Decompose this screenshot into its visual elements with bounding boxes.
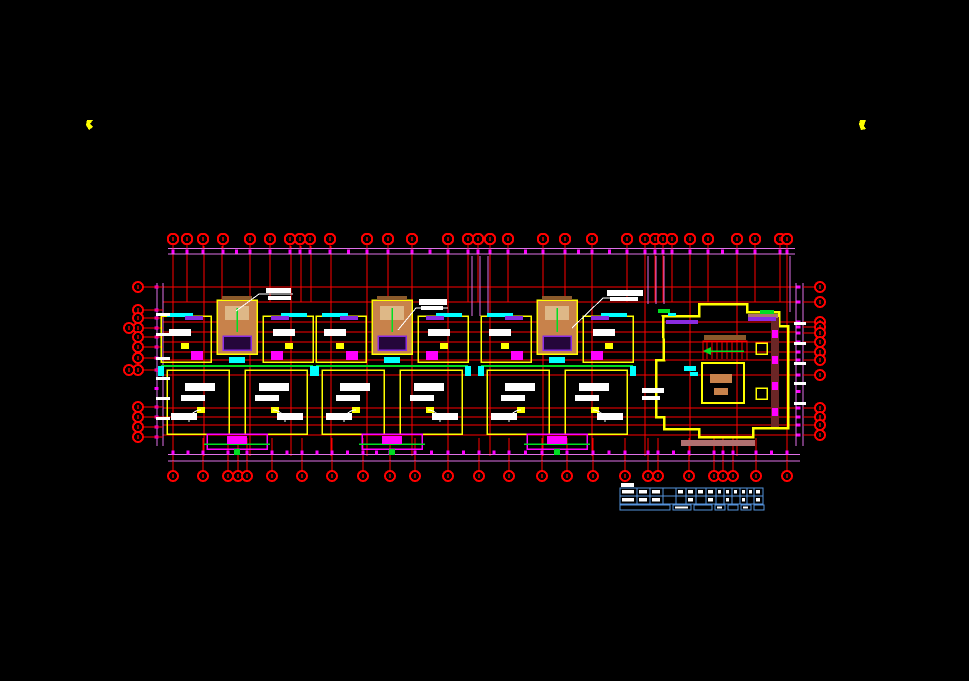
dimension-tick [227, 451, 230, 455]
wall [481, 316, 531, 362]
table-cell-text [726, 498, 729, 502]
dimension-tick [797, 301, 801, 304]
grid-number-glyph [137, 368, 139, 372]
grid-bubble [385, 471, 395, 481]
text-block [579, 383, 609, 391]
fixture [772, 382, 778, 390]
grid-bubble [538, 234, 548, 244]
dimension-tick [462, 451, 465, 455]
grid-bubble [653, 471, 663, 481]
dimension-tick [797, 407, 801, 410]
grid-bubble [198, 471, 208, 481]
dimension-tick [541, 451, 544, 455]
table-cell-text [698, 490, 703, 494]
grid-bubble [133, 412, 143, 422]
dimension-tick [592, 451, 595, 455]
fixture [191, 351, 203, 360]
dimension-tick [478, 451, 481, 455]
grid-bubble [782, 471, 792, 481]
dimension-tick [647, 451, 650, 455]
grid-number-glyph [137, 425, 139, 429]
window-sill [668, 313, 676, 316]
table-cell-text [678, 490, 683, 494]
dimension-tick [299, 250, 302, 254]
grid-bubble [667, 234, 677, 244]
grid-bubble [133, 332, 143, 342]
text-block [259, 383, 289, 391]
grid-number-glyph [227, 474, 229, 478]
grid-number-glyph [137, 356, 139, 360]
text-block [597, 413, 623, 420]
grid-number-glyph [137, 285, 139, 289]
grid-number-glyph [564, 237, 566, 241]
stair-arrow [234, 449, 240, 455]
annotation-text-block [268, 296, 291, 300]
grid-number-glyph [541, 474, 543, 478]
dimension-tick [779, 250, 782, 254]
grid-bubble [245, 234, 255, 244]
grid-number-glyph [819, 331, 821, 335]
dimension-tick [797, 434, 801, 437]
lintel [505, 316, 523, 320]
cursor-marker [859, 120, 866, 130]
dimension-tick [186, 250, 189, 254]
window-sill [549, 357, 565, 363]
table-band-text [675, 507, 688, 509]
dimension-tick [797, 416, 801, 419]
cursor-marker [86, 120, 93, 130]
text-block [491, 413, 517, 420]
grid-bubble [474, 471, 484, 481]
text-block [185, 383, 215, 391]
lintel [271, 316, 289, 320]
beam [542, 296, 572, 300]
level-tick [794, 362, 806, 365]
dimension-tick [347, 250, 350, 254]
dimension-tick [797, 390, 801, 393]
grid-number-glyph [819, 300, 821, 304]
dimension-tick [507, 250, 510, 254]
dimension-tick [187, 451, 190, 455]
lintel [426, 316, 444, 320]
dimension-tick [797, 351, 801, 354]
text-block [169, 329, 191, 336]
dimension-tick [429, 250, 432, 254]
dimension-tick [770, 451, 773, 455]
grid-number-glyph [592, 474, 594, 478]
grid-number-glyph [707, 237, 709, 241]
wall [263, 316, 313, 362]
grid-number-glyph [137, 316, 139, 320]
grid-number-glyph [271, 474, 273, 478]
grid-number-glyph [172, 237, 174, 241]
wall [501, 343, 509, 349]
dimension-tick [235, 250, 238, 254]
dimension-tick [624, 451, 627, 455]
grid-number-glyph [172, 474, 174, 478]
grid-number-glyph [202, 237, 204, 241]
table-cell-text [652, 490, 660, 494]
dimension-tick [688, 451, 691, 455]
grid-number-glyph [566, 474, 568, 478]
grid-bubble [133, 353, 143, 363]
text-block [428, 329, 450, 336]
dimension-tick [411, 250, 414, 254]
annotation-text-block [607, 290, 643, 296]
level-tick [156, 313, 170, 316]
grid-number-glyph [507, 237, 509, 241]
fixture [772, 330, 778, 338]
grid-bubble [265, 234, 275, 244]
grid-number-glyph [447, 474, 449, 478]
table-cell-text [742, 490, 745, 494]
dimension-tick [430, 451, 433, 455]
fixture [547, 436, 567, 444]
grid-bubble [640, 234, 650, 244]
dimension-tick [493, 451, 496, 455]
grid-bubble [815, 297, 825, 307]
grid-bubble [503, 234, 513, 244]
fixture [591, 351, 603, 360]
dimension-tick [566, 451, 569, 455]
grid-bubble [242, 471, 252, 481]
grid-number-glyph [644, 237, 646, 241]
grid-number-glyph [819, 423, 821, 427]
grid-bubble [124, 323, 134, 333]
window-sill [158, 366, 164, 376]
grid-number-glyph [626, 237, 628, 241]
grid-number-glyph [754, 237, 756, 241]
dimension-tick [577, 250, 580, 254]
grid-number-glyph [299, 237, 301, 241]
grid-number-glyph [689, 237, 691, 241]
detail [378, 336, 406, 350]
window-sill [465, 366, 471, 376]
grid-bubble [133, 313, 143, 323]
wall [316, 316, 366, 362]
dimension-tick [362, 451, 365, 455]
grid-number-glyph [137, 435, 139, 439]
grid-bubble [168, 234, 178, 244]
dimension-tick [672, 451, 675, 455]
table-cell-text [708, 490, 713, 494]
beam [222, 296, 252, 300]
level-tick [156, 333, 170, 336]
grid-bubble [473, 234, 483, 244]
grid-number-glyph [137, 405, 139, 409]
wall [167, 370, 229, 434]
grid-number-glyph [671, 237, 673, 241]
table-cell-text [622, 498, 634, 502]
window-sill [690, 372, 698, 376]
annotation-text-block [421, 306, 443, 310]
grid-bubble [620, 471, 630, 481]
dimension-tick [155, 387, 159, 390]
grid-bubble [182, 234, 192, 244]
dimension-tick [662, 250, 665, 254]
fixture [382, 436, 402, 444]
grid-bubble [750, 234, 760, 244]
grid-number-glyph [128, 326, 130, 330]
text-block [181, 395, 205, 401]
grid-bubble [407, 234, 417, 244]
beam [704, 335, 746, 340]
dimension-tick [387, 250, 390, 254]
dimension-tick [249, 250, 252, 254]
wall [756, 388, 767, 399]
grid-bubble [732, 234, 742, 244]
wall [400, 370, 462, 434]
dimension-tick [721, 250, 724, 254]
text-block [501, 395, 525, 401]
table-cell-text [742, 498, 745, 502]
dimension-tick [608, 250, 611, 254]
grid-number-glyph [331, 474, 333, 478]
window-sill [684, 366, 696, 371]
text-block [277, 413, 303, 420]
level-tick [794, 402, 806, 405]
dimension-tick [309, 250, 312, 254]
fixture [227, 436, 247, 444]
table-cell-text [718, 490, 721, 494]
dimension-tick [755, 451, 758, 455]
grid-bubble [815, 370, 825, 380]
grid-number-glyph [624, 474, 626, 478]
annotation-text-block [419, 299, 447, 305]
table-cell [663, 496, 676, 504]
grid-bubble [751, 471, 761, 481]
grid-number-glyph [478, 474, 480, 478]
grid-number-glyph [542, 237, 544, 241]
dimension-tick [271, 451, 274, 455]
grid-number-glyph [657, 474, 659, 478]
grid-number-glyph [387, 237, 389, 241]
fixture [426, 351, 438, 360]
dimension-tick [172, 250, 175, 254]
grid-number-glyph [137, 326, 139, 330]
grid-bubble [718, 471, 728, 481]
table-cell-text [756, 498, 760, 502]
dimension-tick [489, 250, 492, 254]
fixture [511, 351, 523, 360]
text-block [410, 395, 434, 401]
wall [285, 343, 293, 349]
dimension-tick [375, 451, 378, 455]
text-block [336, 395, 360, 401]
wall [181, 343, 189, 349]
grid-bubble [443, 234, 453, 244]
grid-bubble [297, 471, 307, 481]
grid-number-glyph [137, 335, 139, 339]
dimension-tick [754, 250, 757, 254]
dimension-tick [524, 250, 527, 254]
text-block [432, 413, 458, 420]
dimension-tick [331, 451, 334, 455]
dimension-tick [608, 451, 611, 455]
grid-number-glyph [362, 474, 364, 478]
grid-bubble [223, 471, 233, 481]
grid-bubble [295, 234, 305, 244]
dimension-tick [286, 451, 289, 455]
wall [487, 370, 549, 434]
dimension-tick [797, 424, 801, 427]
table-cell-text [688, 498, 693, 502]
text-block [642, 396, 660, 400]
wall-hatch [681, 440, 755, 446]
table-band-cell [620, 505, 670, 510]
dimension-tick [786, 250, 789, 254]
grid-bubble [703, 234, 713, 244]
fixture [271, 351, 283, 360]
stair-arrow [554, 449, 560, 455]
window-sill [229, 357, 245, 363]
wall [565, 370, 627, 434]
table-cell-text [652, 498, 660, 502]
table-cell-text [622, 490, 634, 494]
text-block [489, 329, 511, 336]
grid-bubble [643, 471, 653, 481]
grid-number-glyph [713, 474, 715, 478]
dimension-tick [707, 250, 710, 254]
grid-number-glyph [755, 474, 757, 478]
table-cell [716, 496, 724, 504]
grid-bubble [198, 234, 208, 244]
dimension-tick [477, 250, 480, 254]
grid-bubble [124, 365, 134, 375]
beam [377, 296, 407, 300]
cad-viewport[interactable] [0, 0, 969, 681]
grid-bubble [362, 234, 372, 244]
table-band-text [717, 507, 722, 509]
schedule-table [620, 483, 764, 510]
window-sill [630, 366, 636, 376]
stair-arrow [760, 310, 774, 314]
grid-number-glyph [289, 237, 291, 241]
dimension-tick [644, 250, 647, 254]
dimension-tick [346, 451, 349, 455]
grid-number-glyph [688, 474, 690, 478]
text-block [593, 329, 615, 336]
detail [223, 336, 251, 350]
dimension-tick [289, 250, 292, 254]
grid-bubble [504, 471, 514, 481]
grid-number-glyph [249, 237, 251, 241]
grid-bubble [218, 234, 228, 244]
dimension-tick [316, 451, 319, 455]
dimension-tick [329, 250, 332, 254]
table-cell [732, 496, 740, 504]
dimension-tick [202, 451, 205, 455]
dimension-tick [657, 451, 660, 455]
grid-number-glyph [447, 237, 449, 241]
table-band-cell [694, 505, 712, 510]
level-tick [156, 357, 170, 360]
wall [440, 343, 448, 349]
dimension-tick [172, 451, 175, 455]
lintel [340, 316, 358, 320]
dimension-tick [797, 326, 801, 329]
grid-number-glyph [128, 368, 130, 372]
dimension-tick [797, 286, 801, 289]
grid-bubble [587, 234, 597, 244]
dimension-tick [222, 250, 225, 254]
text-block [642, 388, 664, 393]
wall [418, 316, 468, 362]
window-sill [384, 357, 400, 363]
grid-bubble [285, 234, 295, 244]
stair-core [714, 388, 728, 395]
grid-number-glyph [819, 406, 821, 410]
grid-bubble [562, 471, 572, 481]
stair-arrow [389, 449, 395, 455]
grid-bubble [383, 234, 393, 244]
wall [245, 370, 307, 434]
grid-bubble [728, 471, 738, 481]
grid-number-glyph [786, 237, 788, 241]
annotation-text-block [610, 297, 638, 301]
grid-number-glyph [662, 237, 664, 241]
grid-bubble [815, 355, 825, 365]
dimension-tick [246, 451, 249, 455]
table-cell [676, 496, 686, 504]
grid-bubble [325, 234, 335, 244]
grid-number-glyph [786, 474, 788, 478]
grid-bubble [588, 471, 598, 481]
grid-bubble [133, 432, 143, 442]
dimension-tick [797, 332, 801, 335]
grid-bubble [133, 342, 143, 352]
grid-bubble [537, 471, 547, 481]
dimension-tick [626, 250, 629, 254]
dimension-tick [301, 451, 304, 455]
grid-number-glyph [819, 358, 821, 362]
lintel [666, 320, 698, 324]
text-block [171, 413, 197, 420]
table-band-text [743, 507, 748, 509]
grid-number-glyph [246, 474, 248, 478]
grid-number-glyph [489, 237, 491, 241]
grid-number-glyph [237, 474, 239, 478]
dimension-tick [269, 250, 272, 254]
table-cell-text [639, 490, 647, 494]
table-cell [747, 496, 754, 504]
lintel [185, 316, 203, 320]
stair-arrow [658, 309, 670, 313]
grid-bubble [168, 471, 178, 481]
fixture [346, 351, 358, 360]
dimension-tick [797, 359, 801, 362]
dimension-tick [524, 451, 527, 455]
grid-bubble [133, 422, 143, 432]
grid-number-glyph [137, 415, 139, 419]
grid-bubble [684, 471, 694, 481]
dimension-tick [689, 250, 692, 254]
dimension-tick [591, 250, 594, 254]
grid-number-glyph [269, 237, 271, 241]
grid-number-glyph [186, 237, 188, 241]
dimension-tick [366, 250, 369, 254]
grid-number-glyph [736, 237, 738, 241]
grid-number-glyph [722, 474, 724, 478]
text-block [575, 395, 599, 401]
grid-number-glyph [477, 237, 479, 241]
level-tick [794, 322, 806, 325]
grid-bubble [267, 471, 277, 481]
dimension-tick [722, 451, 725, 455]
stair-core [710, 374, 732, 383]
grid-number-glyph [389, 474, 391, 478]
table-cell-text [734, 490, 737, 494]
